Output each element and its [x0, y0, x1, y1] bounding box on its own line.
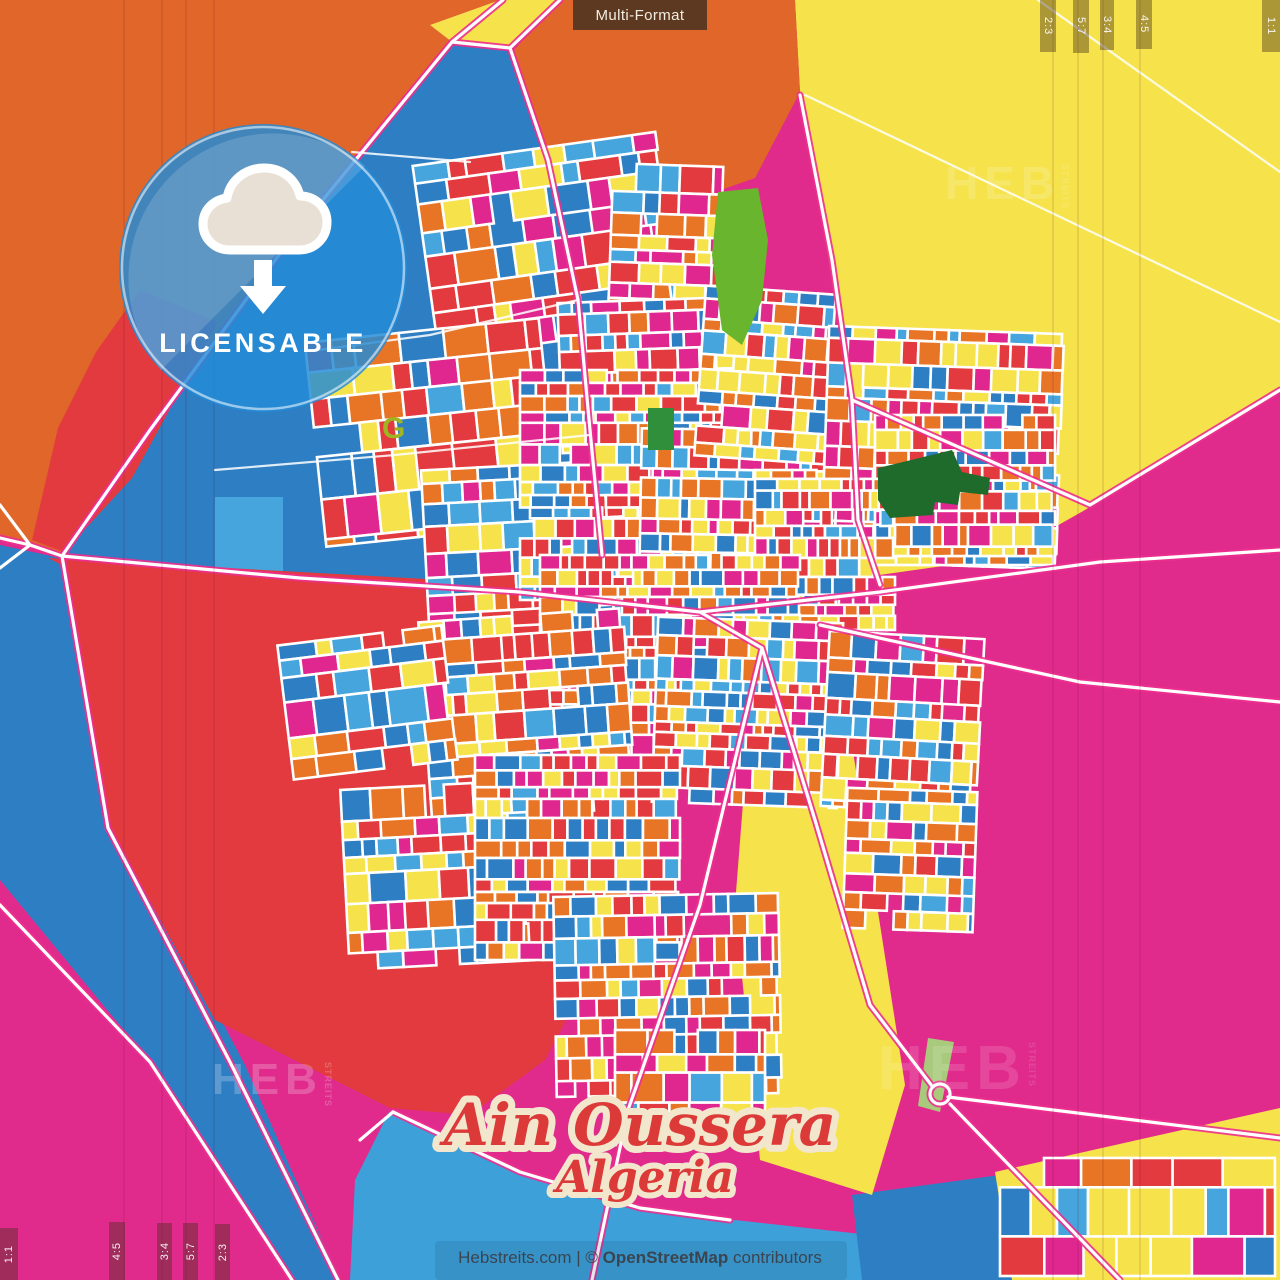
- attribution-osm-link[interactable]: OpenStreetMap: [603, 1248, 729, 1267]
- crop-mark-3-4-top: 3:4: [1100, 0, 1114, 50]
- attribution-suffix: contributors: [728, 1248, 822, 1267]
- attribution-site: Hebstreits.com | ©: [458, 1248, 602, 1267]
- crop-mark-5-7-top: 5:7: [1073, 0, 1089, 53]
- heb-watermark-top-right: HEB STREITS: [945, 160, 1070, 209]
- badge-graphic: LICENSABLE: [117, 122, 409, 414]
- licensable-badge: LICENSABLE: [117, 122, 409, 414]
- olive-g-glyph: G: [382, 412, 405, 445]
- crop-mark-2-3-top: 2:3: [1040, 0, 1056, 52]
- watermark-text: HEB: [945, 160, 1060, 206]
- watermark-subtext: STREITS: [1060, 164, 1070, 209]
- map-title-group: Ain Oussera Algeria: [0, 1060, 1280, 1240]
- format-label-bar: Multi-Format: [573, 0, 707, 30]
- attribution: Hebstreits.com | © OpenStreetMap contrib…: [0, 1248, 1280, 1268]
- crop-mark-4-5-top: 4:5: [1136, 0, 1152, 49]
- park-green-small: [648, 408, 674, 450]
- country-subtitle: Algeria: [552, 1152, 734, 1203]
- city-title: Ain Oussera: [439, 1091, 836, 1159]
- crop-mark-1-1-top-right: 1:1: [1262, 0, 1280, 52]
- badge-label: LICENSABLE: [159, 328, 367, 358]
- map-poster: G: [0, 0, 1280, 1280]
